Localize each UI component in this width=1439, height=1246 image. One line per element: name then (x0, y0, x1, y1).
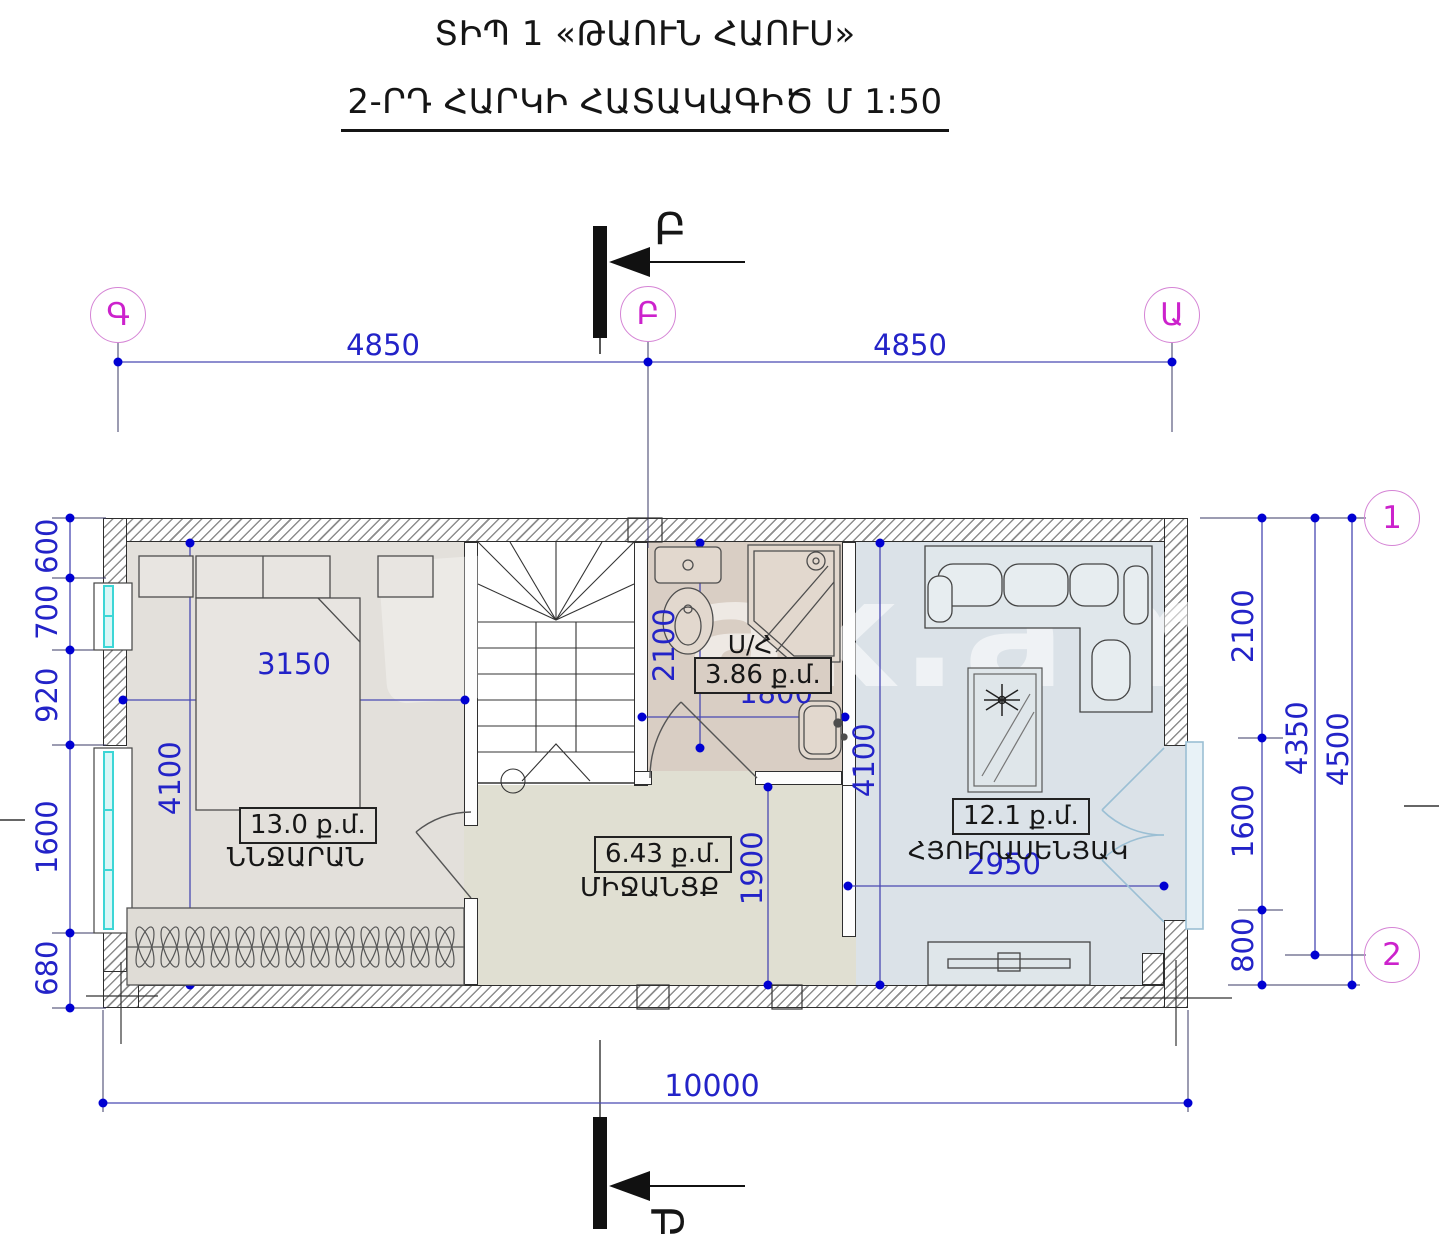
dim-1600-right: 1600 (1228, 761, 1258, 881)
axis-circle-b: Բ (620, 286, 676, 342)
wardrobe (127, 908, 464, 985)
bath-label: Ս/Հ (712, 630, 788, 659)
axis-circle-g: Գ (90, 287, 146, 343)
window-700 (94, 583, 132, 650)
axis-circle-2: 2 (1364, 927, 1420, 983)
title-line-1: ՏԻՊ 1 «ԹԱՈՒՆ ՀԱՈՒՍ» (240, 14, 1050, 54)
bathroom-door (650, 702, 757, 778)
bedroom-area-box: 13.0 ք.մ. (239, 807, 377, 844)
dim-4850-right: 4850 (830, 330, 990, 360)
dim-920: 920 (32, 635, 62, 755)
bedroom-name: ՆՆՋԱՐԱՆ (211, 843, 381, 873)
section-letter-top: Բ (654, 204, 686, 255)
dim-4100-living: 4100 (849, 700, 879, 820)
axis-letter-b: Բ (637, 296, 660, 332)
dim-1900: 1900 (737, 808, 767, 928)
axis-letter-g: Գ (106, 297, 129, 333)
axis-circle-a: Ա (1144, 287, 1200, 343)
coffee-table (968, 668, 1042, 792)
hall-name: ՄԻՋԱՆՑՔ (560, 873, 740, 903)
title-line-2: 2-ՐԴ ՀԱՐԿԻ ՀԱՏԱԿԱԳԻԾ Մ 1:50 (341, 82, 948, 132)
bedroom-door (416, 812, 471, 898)
floor-plan-page: ՏԻՊ 1 «ԹԱՈՒՆ ՀԱՈՒՍ» 2-ՐԴ ՀԱՐԿԻ ՀԱՏԱԿԱԳԻԾ… (0, 0, 1439, 1246)
tv-stand (928, 942, 1090, 985)
bath-area-box: 3.86 ք.մ. (694, 657, 832, 694)
window-1600 (94, 748, 132, 933)
dim-2100-right: 2100 (1228, 566, 1258, 686)
section-letter-bottom: Բ (641, 1205, 692, 1237)
axis-circle-1: 1 (1364, 490, 1420, 546)
dim-1600-left: 1600 (32, 777, 62, 897)
hall-area-box: 6.43 ք.մ. (594, 836, 732, 873)
dim-4100-bedroom: 4100 (155, 718, 185, 838)
dim-3150: 3150 (214, 649, 374, 679)
axis-number-1: 1 (1382, 500, 1402, 536)
dim-4500: 4500 (1323, 689, 1353, 809)
dim-2100-bath: 2100 (649, 585, 679, 705)
dim-4850-left: 4850 (303, 330, 463, 360)
dim-800: 800 (1228, 885, 1258, 1005)
axis-number-2: 2 (1382, 937, 1402, 973)
axis-letter-a: Ա (1160, 297, 1184, 333)
living-name: ՀՅՈՒՐԱՍԵՆՅԱԿ (908, 836, 1113, 865)
living-area-box: 12.1 ք.մ. (952, 798, 1090, 835)
stairs (478, 542, 634, 793)
dim-4350: 4350 (1282, 678, 1312, 798)
dim-680: 680 (32, 908, 62, 1028)
dim-10000: 10000 (632, 1071, 792, 1103)
plan-linework (0, 0, 1439, 1246)
drawing-title: ՏԻՊ 1 «ԹԱՈՒՆ ՀԱՈՒՍ» 2-ՐԴ ՀԱՐԿԻ ՀԱՏԱԿԱԳԻԾ… (240, 14, 1050, 132)
